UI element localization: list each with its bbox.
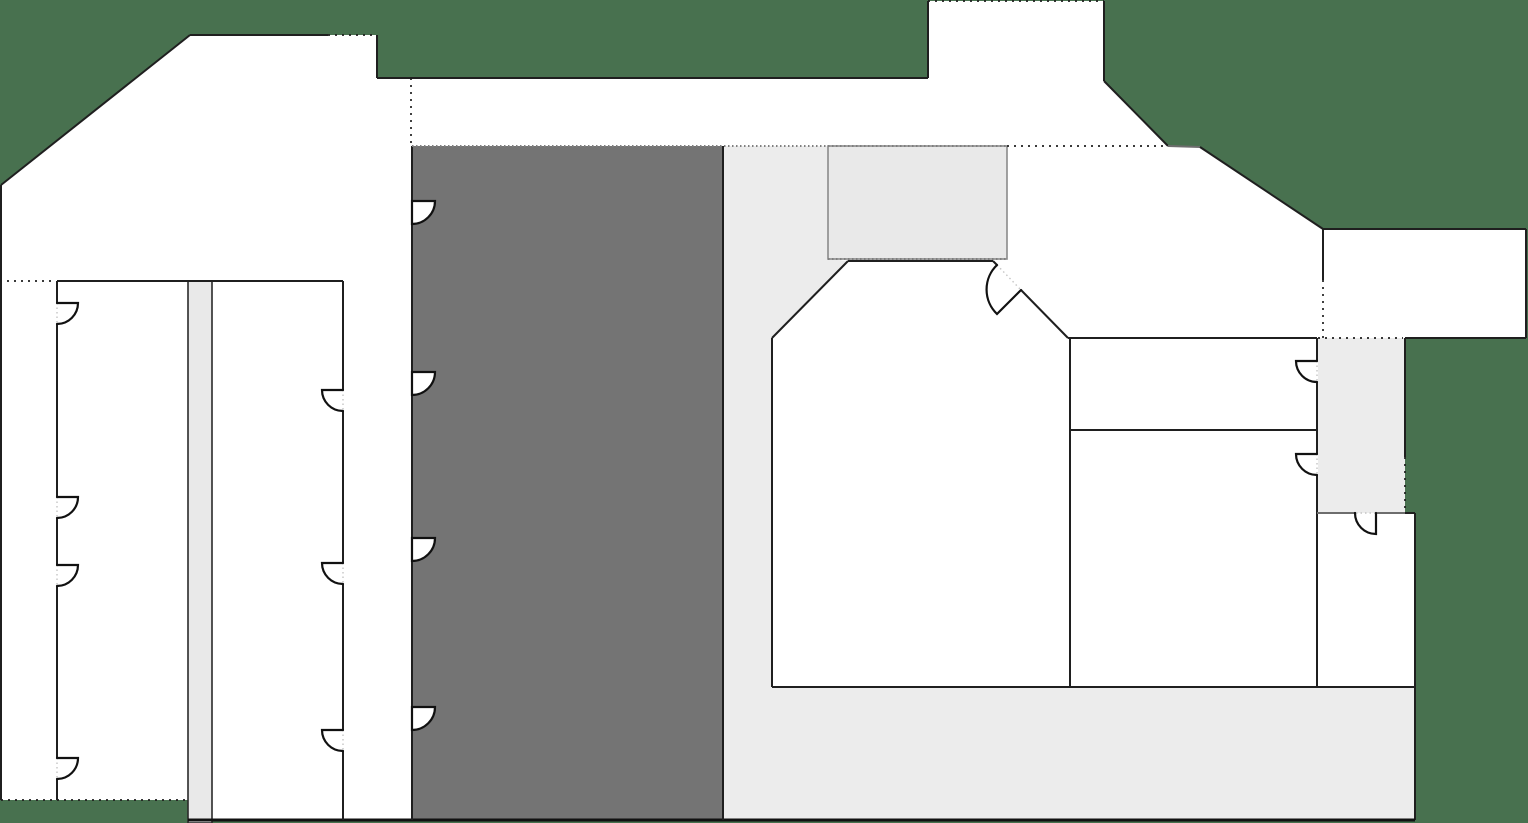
floor-plan xyxy=(0,0,1528,823)
wall-segment xyxy=(1168,146,1200,147)
floor-plan-stage xyxy=(0,0,1528,823)
core-block xyxy=(412,146,723,820)
service-column xyxy=(188,281,212,823)
vestibule-room xyxy=(828,146,1007,259)
east-corridor xyxy=(1318,338,1405,513)
